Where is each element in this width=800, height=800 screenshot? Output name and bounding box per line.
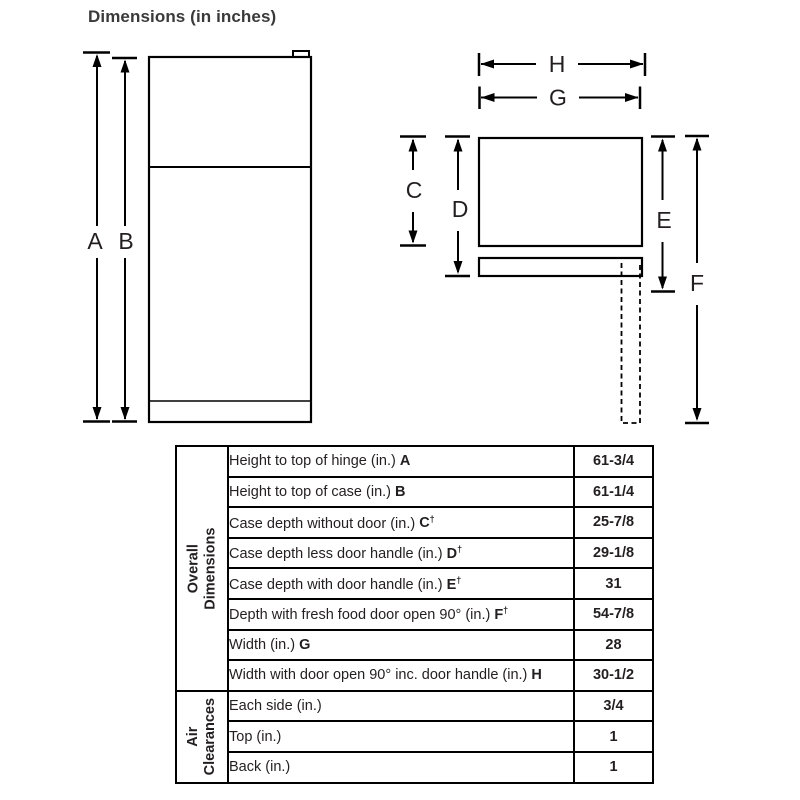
row-value: 25-7/8	[574, 507, 653, 538]
dim-label-f: F	[690, 270, 704, 296]
table-row: Height to top of case (in.)B 61-1/4	[176, 477, 653, 508]
row-value: 29-1/8	[574, 538, 653, 569]
table-row: Width with door open 90° inc. door handl…	[176, 660, 653, 691]
dim-label-a: A	[87, 228, 103, 254]
row-label: Case depth without door (in.)C†	[228, 507, 574, 538]
row-value: 28	[574, 630, 653, 661]
dim-letter: A	[400, 453, 410, 469]
row-value: 31	[574, 568, 653, 599]
dimensions-table: Overall Dimensions Height to top of hing…	[175, 445, 654, 784]
door-open-90-dashed	[622, 263, 641, 423]
row-label: Back (in.)	[228, 752, 574, 783]
dim-letter: G	[299, 637, 310, 653]
row-value: 3/4	[574, 691, 653, 722]
group-label-air-clearances: Air Clearances	[176, 691, 228, 783]
row-value: 61-1/4	[574, 477, 653, 508]
table-row: Case depth with door handle (in.)E† 31	[176, 568, 653, 599]
row-label: Each side (in.)	[228, 691, 574, 722]
row-label: Height to top of case (in.)B	[228, 477, 574, 508]
table-row: Overall Dimensions Height to top of hing…	[176, 446, 653, 477]
dim-label-d: D	[452, 196, 469, 222]
group-label-text: Air Clearances	[185, 698, 218, 775]
row-label: Case depth less door handle (in.)D†	[228, 538, 574, 569]
dim-label-c: C	[406, 177, 423, 203]
row-value: 1	[574, 721, 653, 752]
hinge-bump	[293, 51, 309, 57]
dim-label-b: B	[118, 228, 133, 254]
row-label: Case depth with door handle (in.)E†	[228, 568, 574, 599]
dim-letter: F	[494, 607, 503, 623]
table-row: Case depth without door (in.)C† 25-7/8	[176, 507, 653, 538]
row-label: Depth with fresh food door open 90° (in.…	[228, 599, 574, 630]
fridge-case-front	[149, 57, 311, 422]
row-label: Top (in.)	[228, 721, 574, 752]
dim-letter: H	[531, 667, 541, 683]
dagger-mark: †	[457, 544, 462, 554]
dim-letter: E	[447, 577, 457, 593]
table-row: Depth with fresh food door open 90° (in.…	[176, 599, 653, 630]
row-value: 30-1/2	[574, 660, 653, 691]
group-label-text: Overall Dimensions	[185, 527, 218, 609]
door-closed	[479, 258, 642, 276]
dagger-mark: †	[503, 605, 508, 615]
dagger-mark: †	[456, 575, 461, 585]
row-value: 61-3/4	[574, 446, 653, 477]
table-row: Width (in.)G 28	[176, 630, 653, 661]
front-view	[149, 51, 311, 422]
table-row: Case depth less door handle (in.)D† 29-1…	[176, 538, 653, 569]
row-label: Width (in.)G	[228, 630, 574, 661]
dim-label-g: G	[549, 85, 567, 111]
dagger-mark: †	[430, 514, 435, 524]
fridge-case-top	[479, 138, 642, 246]
dim-letter: B	[395, 484, 405, 500]
dim-letter: D	[447, 546, 457, 562]
row-label: Width with door open 90° inc. door handl…	[228, 660, 574, 691]
table-row: Top (in.) 1	[176, 721, 653, 752]
row-label: Height to top of hinge (in.)A	[228, 446, 574, 477]
spec-sheet-page: { "title": "Dimensions (in inches)", "di…	[0, 0, 800, 800]
row-value: 54-7/8	[574, 599, 653, 630]
table-row: Air Clearances Each side (in.) 3/4	[176, 691, 653, 722]
row-value: 1	[574, 752, 653, 783]
dim-label-h: H	[549, 51, 566, 77]
dim-label-e: E	[656, 207, 671, 233]
dim-letter: C	[419, 515, 429, 531]
table-row: Back (in.) 1	[176, 752, 653, 783]
top-view	[479, 138, 642, 423]
group-label-overall-dimensions: Overall Dimensions	[176, 446, 228, 691]
